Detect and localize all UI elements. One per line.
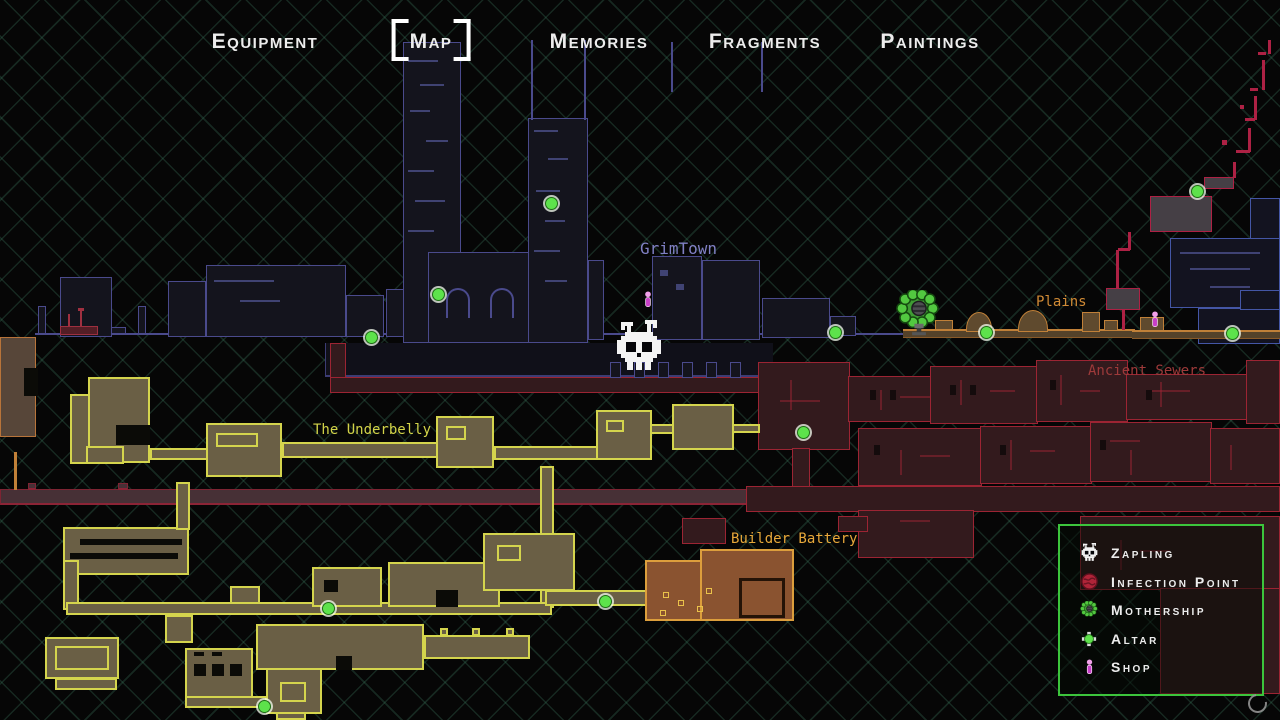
tower-detail [536, 190, 560, 192]
tab-equipment[interactable]: Equipment [212, 30, 319, 54]
legend-label: Infection Point [1111, 574, 1241, 590]
sewers-partition [900, 396, 930, 398]
underbelly-room [86, 446, 124, 464]
underbelly-room [206, 423, 282, 477]
sewers-partition [1080, 390, 1100, 392]
builder-inner-room [739, 578, 785, 618]
map-legend: Zapling Infection Point Mothership Altar… [1058, 524, 1264, 696]
underbelly-hub [436, 416, 494, 468]
builder-node [678, 600, 684, 606]
sewers-room [858, 428, 982, 486]
underbelly-window [212, 652, 222, 656]
infection-trail [1248, 128, 1251, 152]
underbelly-window [212, 664, 224, 676]
underbelly-corridor [545, 590, 647, 606]
legend-label: Zapling [1111, 545, 1175, 561]
sewers-partition [1160, 382, 1162, 407]
altar-marker [599, 595, 612, 608]
region-label-the-underbelly: The Underbelly [313, 422, 431, 438]
builder-node [697, 606, 703, 612]
sewers-partition [990, 390, 1015, 392]
sewers-slit [870, 390, 876, 400]
ship-mast [80, 310, 82, 326]
sewers-slit [1050, 380, 1056, 390]
sewers-slit [890, 390, 896, 400]
sewers-slit [950, 385, 956, 395]
infection-trail [1116, 250, 1119, 290]
building-detail [240, 300, 280, 302]
builder-node [663, 592, 669, 598]
tower-detail [420, 84, 444, 86]
builder-node [706, 588, 712, 594]
legend-label: Shop [1111, 659, 1152, 675]
sewers-room [1090, 422, 1212, 482]
tower-detail [415, 200, 445, 202]
sewers-partition [1110, 440, 1140, 442]
selection-bracket-left [392, 19, 409, 61]
sewers-partition [1010, 440, 1012, 470]
sewers-room [980, 426, 1092, 484]
underbelly-corridor [185, 696, 267, 708]
infection-dot [1240, 105, 1244, 109]
underbelly-notch [116, 425, 150, 445]
grimtown-building [168, 281, 206, 337]
underbelly-detail [55, 646, 109, 670]
player-zapling-icon [613, 320, 665, 381]
mothership-marker [895, 290, 943, 341]
region-label-grimtown: GrimTown [640, 239, 717, 258]
altar-marker [365, 331, 378, 344]
underbelly-window [230, 664, 242, 676]
map-screen: GrimTown Plains Ancient Sewers The Under… [0, 0, 1280, 720]
underbelly-corridor [732, 424, 760, 433]
sewers-partition [900, 450, 902, 475]
altar-marker [258, 700, 271, 713]
tower-detail [534, 130, 558, 132]
corridor-notch [28, 483, 36, 490]
sewers-room [930, 366, 1038, 424]
tower-base-arch [490, 288, 514, 318]
sewers-partition [1230, 445, 1232, 470]
plains-house [1082, 312, 1100, 332]
sewers-partition [880, 390, 882, 410]
west-cliff-notch [24, 368, 38, 396]
zigzag-gap [70, 553, 178, 559]
grimtown-post [38, 306, 46, 334]
tab-memories[interactable]: Memories [550, 30, 649, 54]
shop-marker [643, 291, 653, 313]
legend-row: Shop [1076, 653, 1262, 682]
infection-point-icon [1076, 572, 1102, 591]
east-structure-detail [1210, 286, 1250, 288]
altar-icon [1076, 631, 1102, 647]
tower-detail [426, 140, 448, 142]
underbelly-room [165, 615, 193, 643]
underbelly-room [230, 586, 260, 604]
underbelly-tooth [506, 628, 514, 636]
tower-detail [408, 230, 434, 232]
sewers-room [682, 518, 726, 544]
underbelly-notch [336, 656, 352, 670]
underbelly-notch [324, 580, 338, 592]
underbelly-room [312, 567, 382, 607]
underground-tooth [682, 362, 693, 378]
altar-marker [432, 288, 445, 301]
tower-base-arch [446, 288, 470, 318]
sewers-slit [1146, 390, 1152, 400]
legend-label: Mothership [1111, 602, 1206, 618]
building-detail [214, 280, 274, 282]
sewers-partition [790, 380, 792, 410]
legend-row: Infection Point [1076, 568, 1262, 597]
underbelly-window [194, 664, 206, 676]
sewers-upper-corridor [330, 377, 772, 393]
shop-marker [1150, 311, 1160, 333]
infection-trail [1254, 96, 1257, 120]
east-structure-detail [1190, 268, 1250, 270]
ship-flag [78, 308, 84, 311]
legend-label: Altar [1111, 631, 1159, 647]
underbelly-window [194, 652, 204, 656]
sewers-room [1126, 374, 1248, 420]
zapling-icon [1076, 543, 1102, 563]
east-structure-detail [1180, 252, 1260, 254]
underground-tooth [730, 362, 741, 378]
east-structure [1240, 290, 1280, 310]
altar-marker [980, 326, 993, 339]
tab-map[interactable]: Map [410, 30, 453, 54]
sewers-partition [960, 380, 962, 405]
underbelly-tooth [472, 628, 480, 636]
underbelly-room [596, 410, 652, 460]
legend-row: Mothership [1076, 596, 1262, 625]
region-label-builder-battery: Builder Battery [731, 531, 857, 547]
infection-trail [1122, 310, 1125, 330]
sewers-room [1210, 428, 1280, 484]
sewers-room [746, 486, 1280, 512]
underbelly-room [276, 712, 306, 720]
west-path [14, 452, 17, 490]
tower-detail [408, 170, 434, 172]
sewers-room [792, 448, 810, 490]
underbelly-tooth [440, 628, 448, 636]
sewers-partition [920, 455, 950, 457]
tower-detail [534, 250, 560, 252]
infection-trail [1118, 248, 1130, 251]
altar-marker [797, 426, 810, 439]
sewers-partition [1030, 450, 1055, 452]
sewers-slit [1100, 440, 1106, 450]
ship-mast [68, 314, 70, 326]
building-detail [660, 270, 668, 276]
underbelly-room [483, 533, 575, 591]
altar-marker [322, 602, 335, 615]
underbelly-notch [436, 590, 458, 607]
sewers-partition [900, 520, 930, 522]
underbelly-detail [606, 420, 624, 432]
tab-fragments[interactable]: Fragments [709, 30, 821, 54]
ship-hull [60, 326, 98, 335]
legend-row: Altar [1076, 625, 1262, 654]
region-label-plains: Plains [1036, 294, 1087, 310]
top-navigation: Equipment Map Memories Fragments Paintin… [0, 0, 1280, 72]
grimtown-building [346, 295, 384, 337]
tower-detail [545, 220, 565, 222]
plains-mound [1018, 310, 1048, 332]
underbelly-room [55, 678, 117, 690]
underbelly-corridor [424, 635, 530, 659]
infection-dot [1222, 140, 1227, 145]
sewers-partition [1150, 390, 1190, 392]
zigzag-gap [80, 539, 182, 545]
sewers-slit [970, 385, 976, 395]
underbelly-detail [446, 426, 466, 440]
underbelly-detail [497, 545, 521, 561]
underbelly-corridor [282, 442, 438, 458]
infection-trail [1250, 88, 1258, 91]
sewers-room [858, 510, 974, 558]
east-structure [1250, 198, 1280, 240]
infection-bar [1204, 177, 1234, 189]
tower-detail [548, 158, 568, 160]
tab-paintings[interactable]: Paintings [880, 30, 979, 54]
grimtown-building [588, 260, 604, 340]
altar-marker [1191, 185, 1204, 198]
mothership-icon [1076, 601, 1102, 620]
shop-icon [1076, 659, 1102, 675]
plains-block [1104, 320, 1118, 331]
infection-trail [1233, 162, 1236, 178]
underbelly-corridor [650, 424, 674, 434]
underbelly-zigzag [63, 527, 189, 575]
grimtown-building [702, 260, 760, 340]
underground-tooth [706, 362, 717, 378]
grimtown-building [762, 298, 830, 338]
altar-marker [829, 326, 842, 339]
underbelly-corridor [150, 448, 208, 460]
sewers-room [1246, 360, 1280, 424]
corridor-notch [118, 483, 128, 490]
tab-map-label: Map [410, 30, 453, 53]
underbelly-detail [280, 682, 306, 702]
grimtown-right-tower [528, 118, 588, 343]
underbelly-shaft [176, 482, 190, 530]
sewers-slit [874, 445, 880, 455]
sewers-long-corridor [0, 489, 748, 505]
sewers-partition [1130, 450, 1132, 475]
region-label-ancient-sewers: Ancient Sewers [1088, 363, 1206, 379]
tower-detail [545, 280, 567, 282]
altar-marker [545, 197, 558, 210]
infection-blob [1106, 288, 1140, 310]
infection-clump [1150, 196, 1212, 232]
builder-node [660, 610, 666, 616]
underbelly-room [672, 404, 734, 450]
selection-bracket-right [453, 19, 470, 61]
sewers-slit [1000, 445, 1006, 455]
legend-row: Zapling [1076, 539, 1262, 568]
underbelly-detail [216, 433, 258, 447]
underbelly-corridor [494, 446, 598, 460]
sewers-room [838, 516, 868, 532]
grimtown-post [138, 306, 146, 334]
sewers-partition [780, 400, 820, 402]
sewers-partition [1060, 375, 1062, 405]
altar-marker [1226, 327, 1239, 340]
building-detail [676, 284, 684, 290]
tower-detail [410, 110, 430, 112]
